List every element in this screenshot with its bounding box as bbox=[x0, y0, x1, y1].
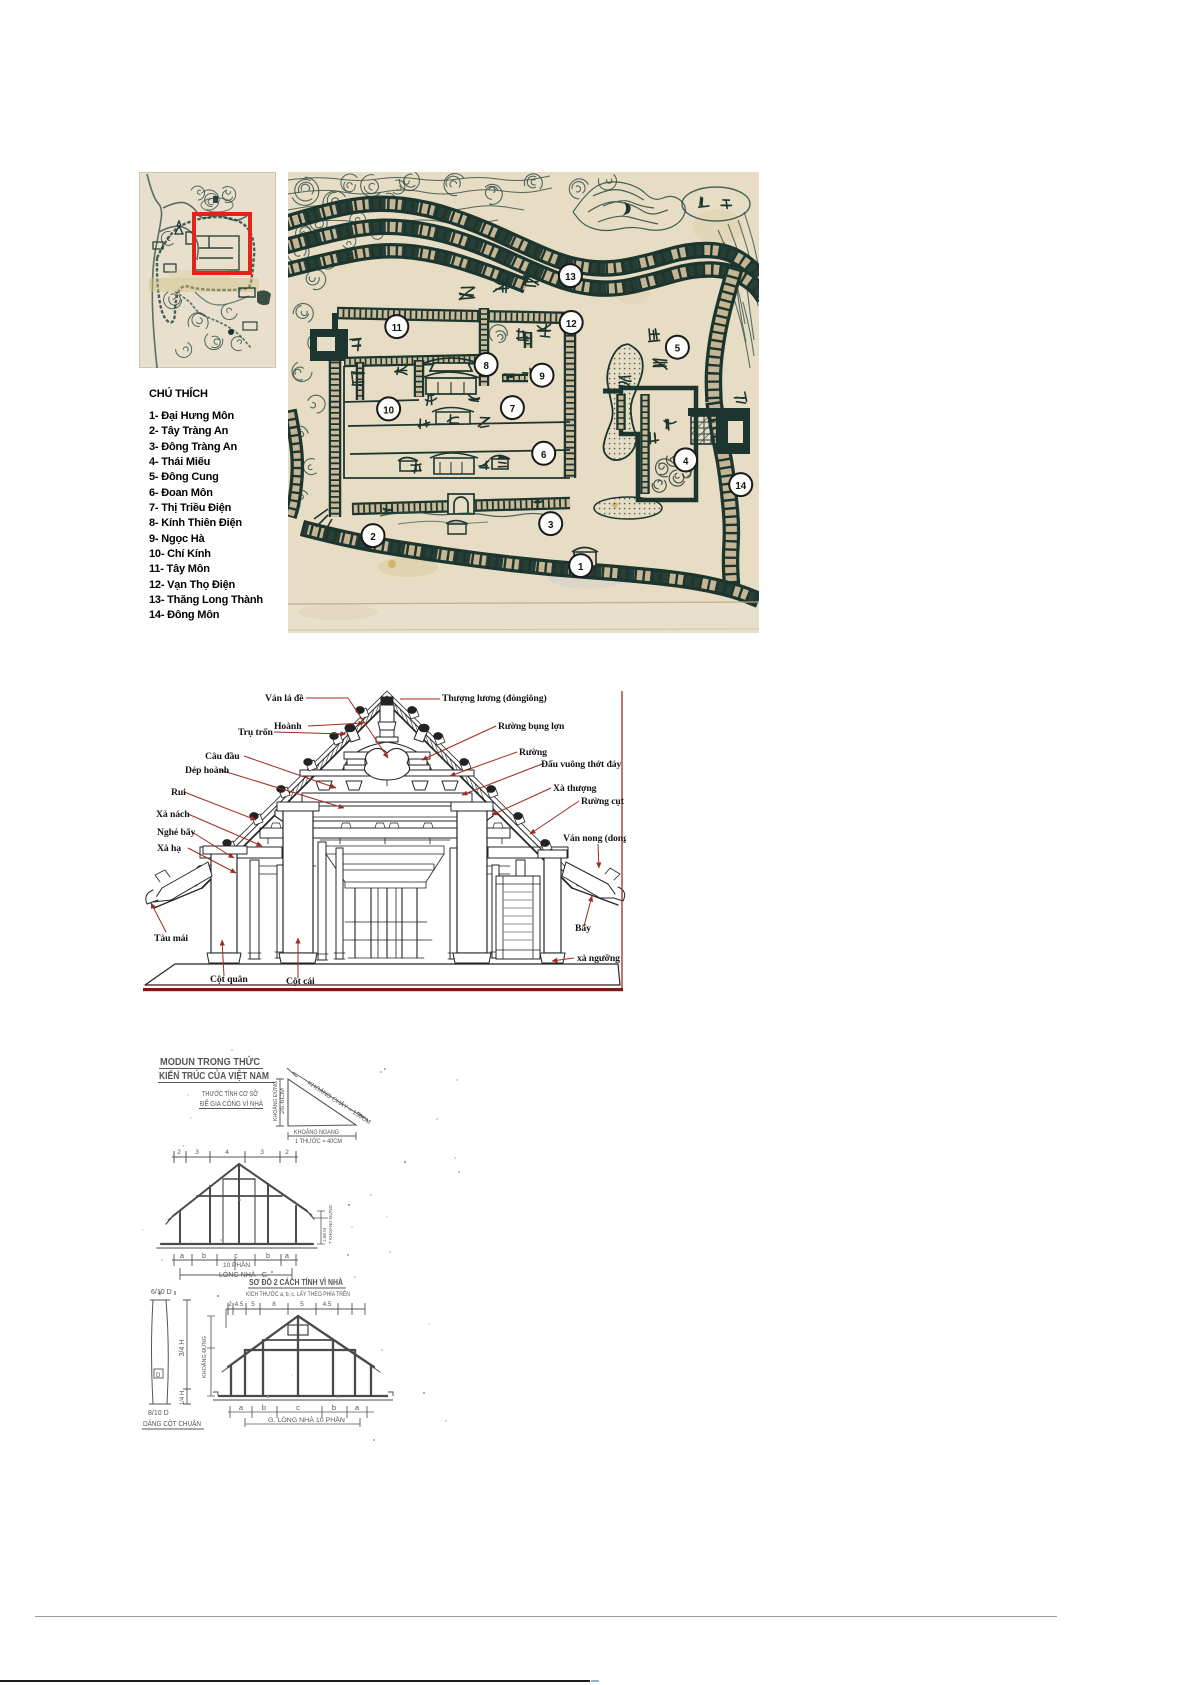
svg-text:Rường: Rường bbox=[519, 747, 547, 758]
svg-text:b: b bbox=[266, 1253, 270, 1260]
svg-text:2: 2 bbox=[177, 1149, 181, 1156]
svg-text:a: a bbox=[180, 1253, 184, 1260]
svg-text:Xà nách: Xà nách bbox=[156, 809, 190, 820]
svg-text:3: 3 bbox=[260, 1149, 264, 1156]
svg-text:10: 10 bbox=[383, 405, 394, 416]
svg-text:4.5: 4.5 bbox=[323, 1301, 332, 1308]
svg-text:2: 2 bbox=[370, 532, 375, 543]
svg-text:5: 5 bbox=[300, 1301, 304, 1308]
svg-text:Trụ trốn: Trụ trốn bbox=[238, 727, 274, 738]
svg-text:Câu đầu: Câu đầu bbox=[205, 751, 240, 762]
svg-text:11: 11 bbox=[392, 323, 403, 334]
svg-text:DÁNG CỘT CHUẬN: DÁNG CỘT CHUẬN bbox=[143, 1419, 201, 1428]
svg-text:6/10 D: 6/10 D bbox=[151, 1289, 172, 1296]
svg-text:2: 2 bbox=[285, 1149, 289, 1156]
svg-text:Bẩy: Bẩy bbox=[575, 923, 591, 934]
svg-text:Rường bụng lợn: Rường bụng lợn bbox=[498, 721, 565, 732]
svg-text:4: 4 bbox=[225, 1149, 229, 1156]
svg-text:Rường cụt: Rường cụt bbox=[581, 796, 625, 807]
svg-text:b: b bbox=[202, 1253, 206, 1260]
svg-text:5: 5 bbox=[251, 1301, 255, 1308]
svg-text:a: a bbox=[355, 1403, 360, 1412]
svg-text:KÍCH THƯỚC a, b, c. LẤY THEO P: KÍCH THƯỚC a, b, c. LẤY THEO PHÍA TRÊN bbox=[246, 1288, 350, 1298]
svg-text:1/4 H: 1/4 H bbox=[180, 1391, 186, 1405]
svg-text:3: 3 bbox=[548, 520, 554, 531]
svg-text:Rui: Rui bbox=[171, 787, 186, 798]
svg-text:Xà hạ: Xà hạ bbox=[157, 843, 181, 854]
svg-text:8/10 D: 8/10 D bbox=[148, 1410, 169, 1417]
svg-text:13: 13 bbox=[565, 272, 576, 283]
svg-text:b: b bbox=[332, 1403, 336, 1412]
svg-text:1 THƯỚC = 40CM: 1 THƯỚC = 40CM bbox=[295, 1136, 342, 1145]
svg-text:26.6CM: 26.6CM bbox=[280, 1088, 286, 1114]
svg-text:Hoành: Hoành bbox=[274, 721, 302, 732]
svg-text:4: 4 bbox=[683, 456, 689, 467]
svg-text:KHOẢNG CHẢY = 150CM: KHOẢNG CHẢY = 150CM bbox=[306, 1078, 373, 1126]
svg-text:Cột cái: Cột cái bbox=[286, 976, 315, 987]
svg-text:c: c bbox=[234, 1253, 238, 1260]
svg-text:9: 9 bbox=[539, 372, 545, 383]
svg-text:7: 7 bbox=[510, 404, 515, 415]
svg-text:10 PHẦN: 10 PHẦN bbox=[223, 1259, 250, 1269]
svg-text:Cột quân: Cột quân bbox=[210, 974, 248, 985]
svg-text:Ván nong (dong): Ván nong (dong) bbox=[563, 833, 626, 844]
svg-text:THƯỚC TÍNH CƠ SỞ: THƯỚC TÍNH CƠ SỞ bbox=[202, 1089, 258, 1098]
svg-text:ĐỂ GIA CÔNG VÌ NHÀ: ĐỂ GIA CÔNG VÌ NHÀ bbox=[200, 1099, 263, 1108]
svg-text:c: c bbox=[296, 1403, 300, 1412]
svg-text:SƠ ĐỒ 2 CÁCH TÍNH VÌ NHÀ: SƠ ĐỒ 2 CÁCH TÍNH VÌ NHÀ bbox=[249, 1277, 343, 1287]
svg-text:KHOẢNG ĐỨNG: KHOẢNG ĐỨNG bbox=[201, 1336, 208, 1378]
svg-text:3: 3 bbox=[195, 1149, 199, 1156]
svg-text:a: a bbox=[285, 1253, 289, 1260]
svg-text:a: a bbox=[239, 1403, 244, 1412]
svg-text:KIẾN TRÚC CỦA VIỆT NAM: KIẾN TRÚC CỦA VIỆT NAM bbox=[159, 1069, 269, 1082]
svg-text:Đấu vuông thớt đáy: Đấu vuông thớt đáy bbox=[541, 759, 622, 770]
svg-text:1.68 M: 1.68 M bbox=[322, 1228, 327, 1242]
svg-text:D: D bbox=[156, 1373, 161, 1379]
svg-text:1: 1 bbox=[578, 562, 584, 573]
svg-text:3/4 H: 3/4 H bbox=[179, 1340, 186, 1357]
svg-text:7 KHOẢNG ĐỨNG: 7 KHOẢNG ĐỨNG bbox=[327, 1204, 333, 1244]
svg-text:Dép hoành: Dép hoành bbox=[185, 765, 230, 776]
svg-text:G. LÒNG NHÀ 10 PHẦN: G. LÒNG NHÀ 10 PHẦN bbox=[268, 1414, 345, 1424]
svg-text:6: 6 bbox=[541, 450, 547, 461]
svg-text:Ván lá đề: Ván lá đề bbox=[265, 693, 304, 704]
svg-text:Nghé bẩy: Nghé bẩy bbox=[157, 827, 195, 838]
svg-text:8: 8 bbox=[483, 361, 489, 372]
svg-text:4.5: 4.5 bbox=[235, 1301, 244, 1308]
svg-text:KHOẢNG NGANG: KHOẢNG NGANG bbox=[294, 1127, 339, 1136]
svg-text:Tàu mái: Tàu mái bbox=[154, 933, 188, 944]
svg-text:KHOẢNG ĐỨNG: KHOẢNG ĐỨNG bbox=[272, 1081, 279, 1121]
svg-text:MODUN TRONG THỨC: MODUN TRONG THỨC bbox=[160, 1055, 260, 1068]
svg-text:2: 2 bbox=[228, 1301, 232, 1308]
svg-text:5: 5 bbox=[675, 344, 681, 355]
svg-text:xà ngưỡng: xà ngưỡng bbox=[577, 953, 620, 964]
svg-text:12: 12 bbox=[566, 319, 577, 330]
svg-text:b: b bbox=[262, 1403, 266, 1412]
svg-text:Xà thượng: Xà thượng bbox=[553, 783, 597, 794]
svg-text:Thượng lương (đòngiông): Thượng lương (đòngiông) bbox=[442, 693, 547, 704]
svg-text:14: 14 bbox=[735, 481, 746, 492]
svg-text:8: 8 bbox=[272, 1301, 276, 1308]
